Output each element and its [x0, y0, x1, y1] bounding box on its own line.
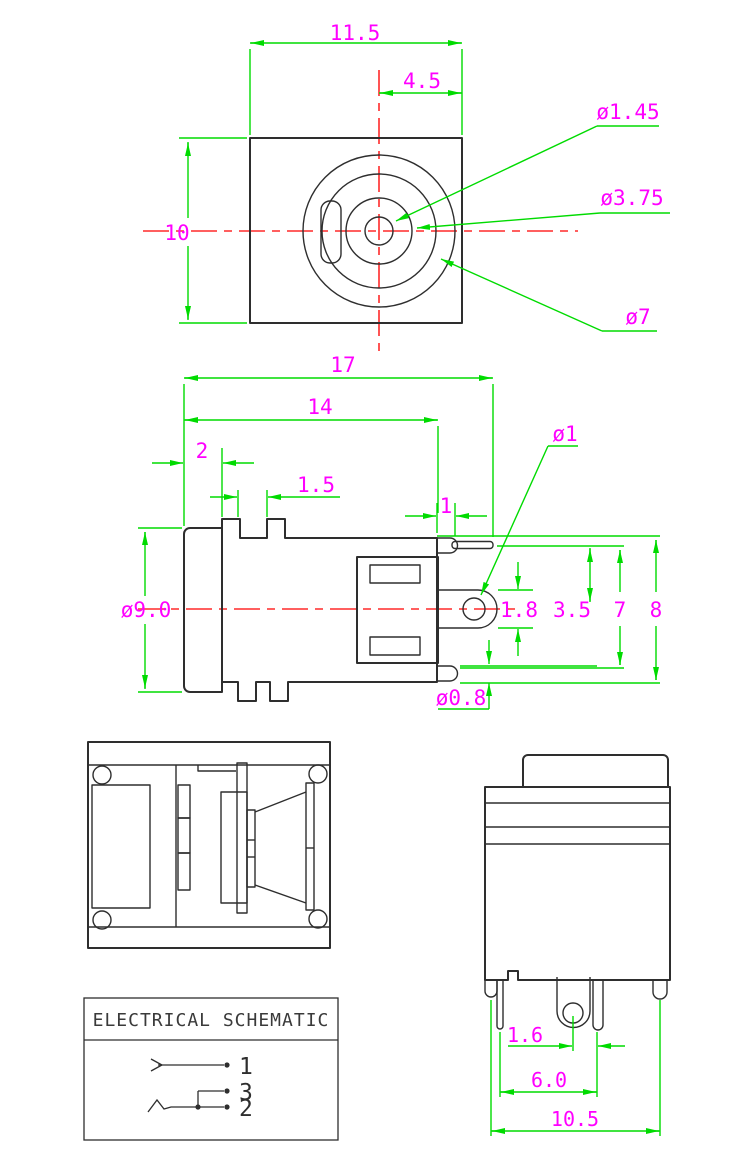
front-view: 11.5 4.5 10 ø1.45 ø3.75 ø7 [143, 21, 670, 352]
keyway-notch [321, 201, 341, 263]
dim-center-to-pin: 3.5 [553, 598, 591, 622]
bottom-terminal [437, 666, 458, 681]
side-view: 17 14 2 1.5 1 ø1 ø9.0 [121, 353, 663, 710]
label-barrel-diameter: ø3.75 [600, 186, 663, 210]
bottom-body-outline [88, 742, 330, 948]
pin-left [497, 980, 503, 1029]
terminal-dot-2 [224, 1104, 229, 1109]
mount-leg-right [653, 980, 667, 999]
body-outline [222, 519, 437, 701]
dim-top-width: 11.5 [330, 21, 381, 45]
shield-slot-top [370, 565, 420, 583]
label-terminal-diameter: ø0.8 [436, 686, 487, 710]
label-lug-hole-dia: ø1 [552, 422, 577, 446]
rear-view: 1.6 6.0 10.5 [485, 755, 670, 1136]
rivet-top-right [309, 765, 327, 783]
label-ring-diameter: ø7 [625, 305, 650, 329]
junction-dot [195, 1104, 200, 1109]
dim-cap-width: 2 [196, 439, 209, 463]
bottom-view [88, 742, 330, 948]
electrical-schematic: ELECTRICAL SCHEMATIC 1 3 2 [84, 998, 338, 1140]
dim-center-offset: 4.5 [403, 69, 441, 93]
center-contact-bar [237, 763, 247, 913]
schematic-title: ELECTRICAL SCHEMATIC [93, 1010, 330, 1031]
engineering-drawing-page: 11.5 4.5 10 ø1.45 ø3.75 ø7 [0, 0, 740, 1150]
rear-body-outline [485, 787, 670, 980]
dim-pin-tab: 1 [440, 494, 453, 518]
rivet-bottom-right [309, 910, 327, 928]
terminal-dot-3 [224, 1088, 229, 1093]
cavity-left [92, 785, 150, 908]
spring-contact-symbol [148, 1100, 224, 1112]
terminal-dot-1 [224, 1062, 229, 1067]
shield-block [357, 557, 438, 663]
spring-arm-bottom [255, 885, 306, 903]
dc-jack-technical-drawing: 11.5 4.5 10 ø1.45 ø3.75 ø7 [0, 0, 740, 1150]
mount-leg-left [485, 980, 497, 997]
cap-outline [184, 528, 222, 692]
contact-base [221, 792, 247, 903]
side-contact [306, 783, 314, 910]
dim-barrel-diameter: ø9.0 [121, 598, 172, 622]
dim-pin-span: 6.0 [531, 1068, 567, 1092]
dim-overall-height: 8 [650, 598, 663, 622]
dim-body-length: 14 [307, 395, 332, 419]
rear-top-tab [523, 755, 668, 787]
dim-pin-offset: 1.6 [507, 1023, 543, 1047]
spring-arm-top [255, 792, 306, 812]
dim-body-width: 10.5 [551, 1107, 599, 1131]
dim-pin-pitch: 7 [614, 598, 627, 622]
dim-top-height: 10 [164, 221, 189, 245]
schematic-pin1: 1 [239, 1054, 253, 1080]
dim-total-length: 17 [330, 353, 355, 377]
contact-hook [198, 765, 236, 771]
top-terminal [437, 538, 458, 553]
dim-lug-height: 1.8 [500, 598, 538, 622]
schematic-pin2: 2 [239, 1096, 253, 1122]
label-pin-diameter: ø1.45 [596, 100, 659, 124]
dim-slot-width: 1.5 [297, 473, 335, 497]
pin-right [593, 980, 603, 1030]
rivet-top-left [93, 766, 111, 784]
shield-slot-bottom [370, 637, 420, 655]
